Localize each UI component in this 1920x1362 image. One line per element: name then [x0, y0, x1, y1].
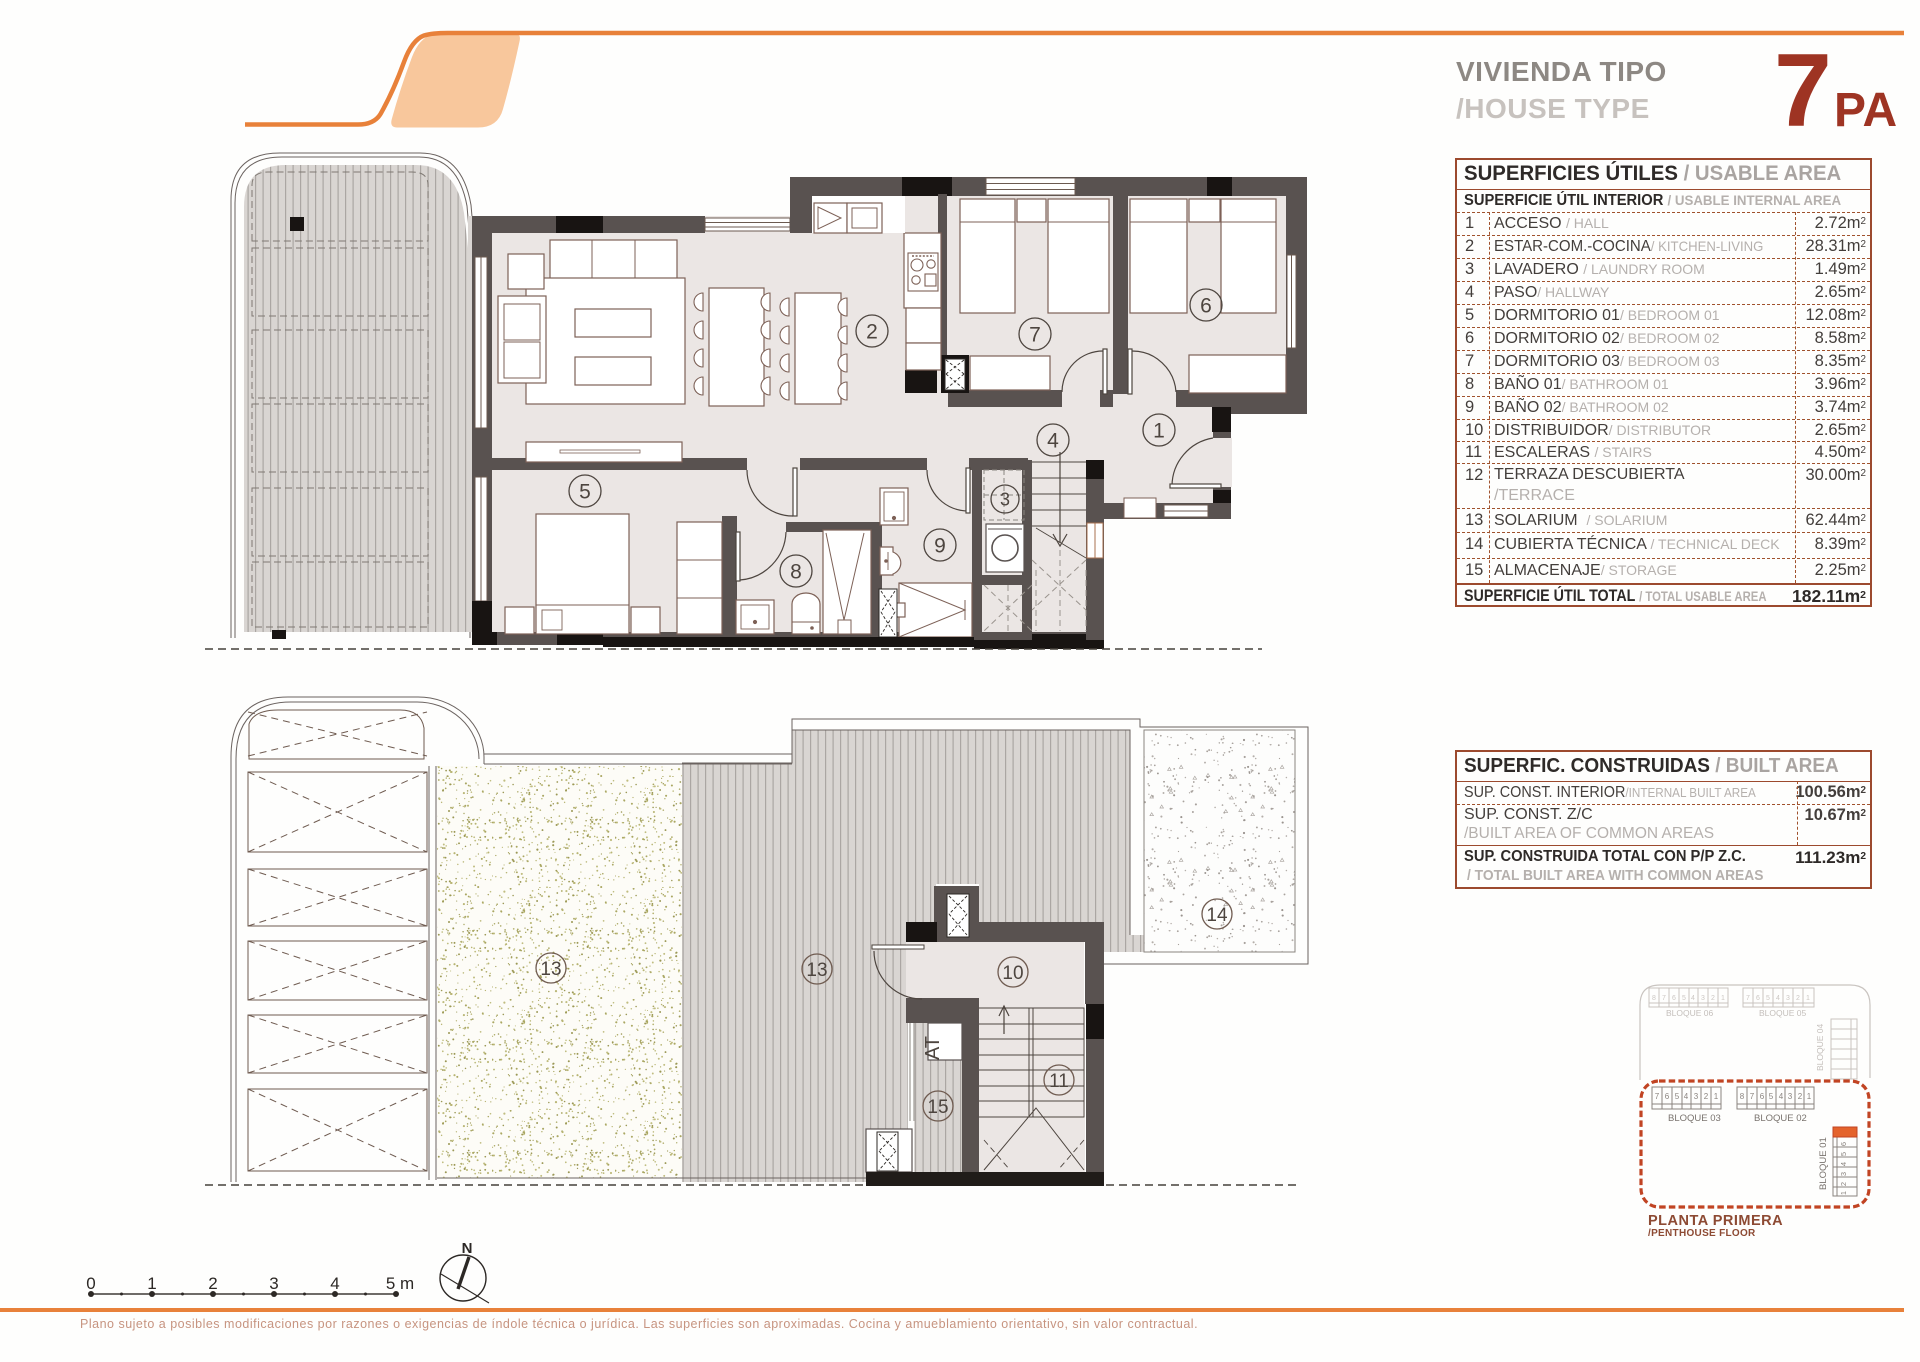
svg-text:BLOQUE 01: BLOQUE 01	[1818, 1137, 1829, 1190]
svg-text:6: 6	[1200, 295, 1212, 318]
svg-text:8: 8	[1652, 995, 1656, 1002]
svg-text:4: 4	[1691, 995, 1695, 1002]
svg-text:10: 10	[1002, 963, 1023, 984]
svg-text:AT: AT	[922, 1036, 944, 1060]
svg-text:3: 3	[1694, 1092, 1699, 1101]
svg-text:5: 5	[1839, 1152, 1848, 1156]
svg-text:14: 14	[1206, 905, 1228, 926]
svg-text:13: 13	[806, 960, 827, 981]
svg-text:8: 8	[1740, 1092, 1745, 1101]
svg-text:5: 5	[1682, 995, 1686, 1002]
svg-text:7: 7	[1029, 324, 1041, 347]
svg-text:7: 7	[1746, 995, 1750, 1002]
svg-text:5: 5	[1766, 995, 1770, 1002]
svg-text:2: 2	[1796, 995, 1800, 1002]
svg-text:7: 7	[1655, 1092, 1660, 1101]
svg-text:1: 1	[147, 1274, 156, 1293]
svg-text:3: 3	[1786, 995, 1790, 1002]
svg-text:3: 3	[1000, 490, 1010, 510]
svg-text:9: 9	[934, 535, 946, 558]
svg-text:1: 1	[1714, 1092, 1719, 1101]
svg-text:2: 2	[208, 1274, 217, 1293]
svg-text:4: 4	[1839, 1162, 1848, 1166]
svg-text:4: 4	[1779, 1092, 1784, 1101]
svg-text:4: 4	[1776, 995, 1780, 1002]
svg-text:2: 2	[866, 321, 878, 344]
svg-text:4: 4	[1047, 430, 1059, 453]
svg-text:BLOQUE 03: BLOQUE 03	[1668, 1113, 1721, 1124]
svg-text:1: 1	[1153, 420, 1165, 443]
svg-text:6: 6	[1839, 1142, 1848, 1146]
svg-text:N: N	[462, 1240, 473, 1257]
svg-text:BLOQUE 05: BLOQUE 05	[1759, 1008, 1807, 1018]
svg-text:1: 1	[1839, 1191, 1848, 1195]
svg-text:6: 6	[1672, 995, 1676, 1002]
svg-text:BLOQUE 02: BLOQUE 02	[1754, 1113, 1807, 1124]
svg-text:3: 3	[1701, 995, 1705, 1002]
svg-text:6: 6	[1665, 1092, 1670, 1101]
svg-text:BLOQUE 04: BLOQUE 04	[1815, 1023, 1825, 1071]
svg-text:4: 4	[1684, 1092, 1689, 1101]
svg-text:6: 6	[1756, 995, 1760, 1002]
svg-text:1: 1	[1806, 995, 1810, 1002]
svg-text:6: 6	[1760, 1092, 1765, 1101]
svg-text:5: 5	[1675, 1092, 1680, 1101]
svg-text:5 m: 5 m	[386, 1274, 414, 1293]
svg-text:2: 2	[1839, 1182, 1848, 1186]
svg-text:11: 11	[1049, 1071, 1069, 1092]
svg-text:2: 2	[1711, 995, 1715, 1002]
svg-text:4: 4	[330, 1274, 339, 1293]
svg-text:0: 0	[86, 1274, 95, 1293]
svg-text:3: 3	[1788, 1092, 1793, 1101]
svg-text:1: 1	[1807, 1092, 1812, 1101]
svg-text:5: 5	[1769, 1092, 1774, 1101]
svg-text:BLOQUE 06: BLOQUE 06	[1666, 1008, 1714, 1018]
svg-text:3: 3	[269, 1274, 278, 1293]
svg-text:15: 15	[927, 1097, 948, 1118]
svg-text:7: 7	[1750, 1092, 1755, 1101]
svg-text:5: 5	[579, 481, 591, 504]
svg-text:2: 2	[1704, 1092, 1709, 1101]
svg-text:8: 8	[790, 561, 802, 584]
svg-text:13: 13	[540, 959, 561, 980]
svg-text:2: 2	[1798, 1092, 1803, 1101]
svg-text:1: 1	[1721, 995, 1725, 1002]
svg-text:3: 3	[1839, 1172, 1848, 1176]
svg-text:7: 7	[1662, 995, 1666, 1002]
